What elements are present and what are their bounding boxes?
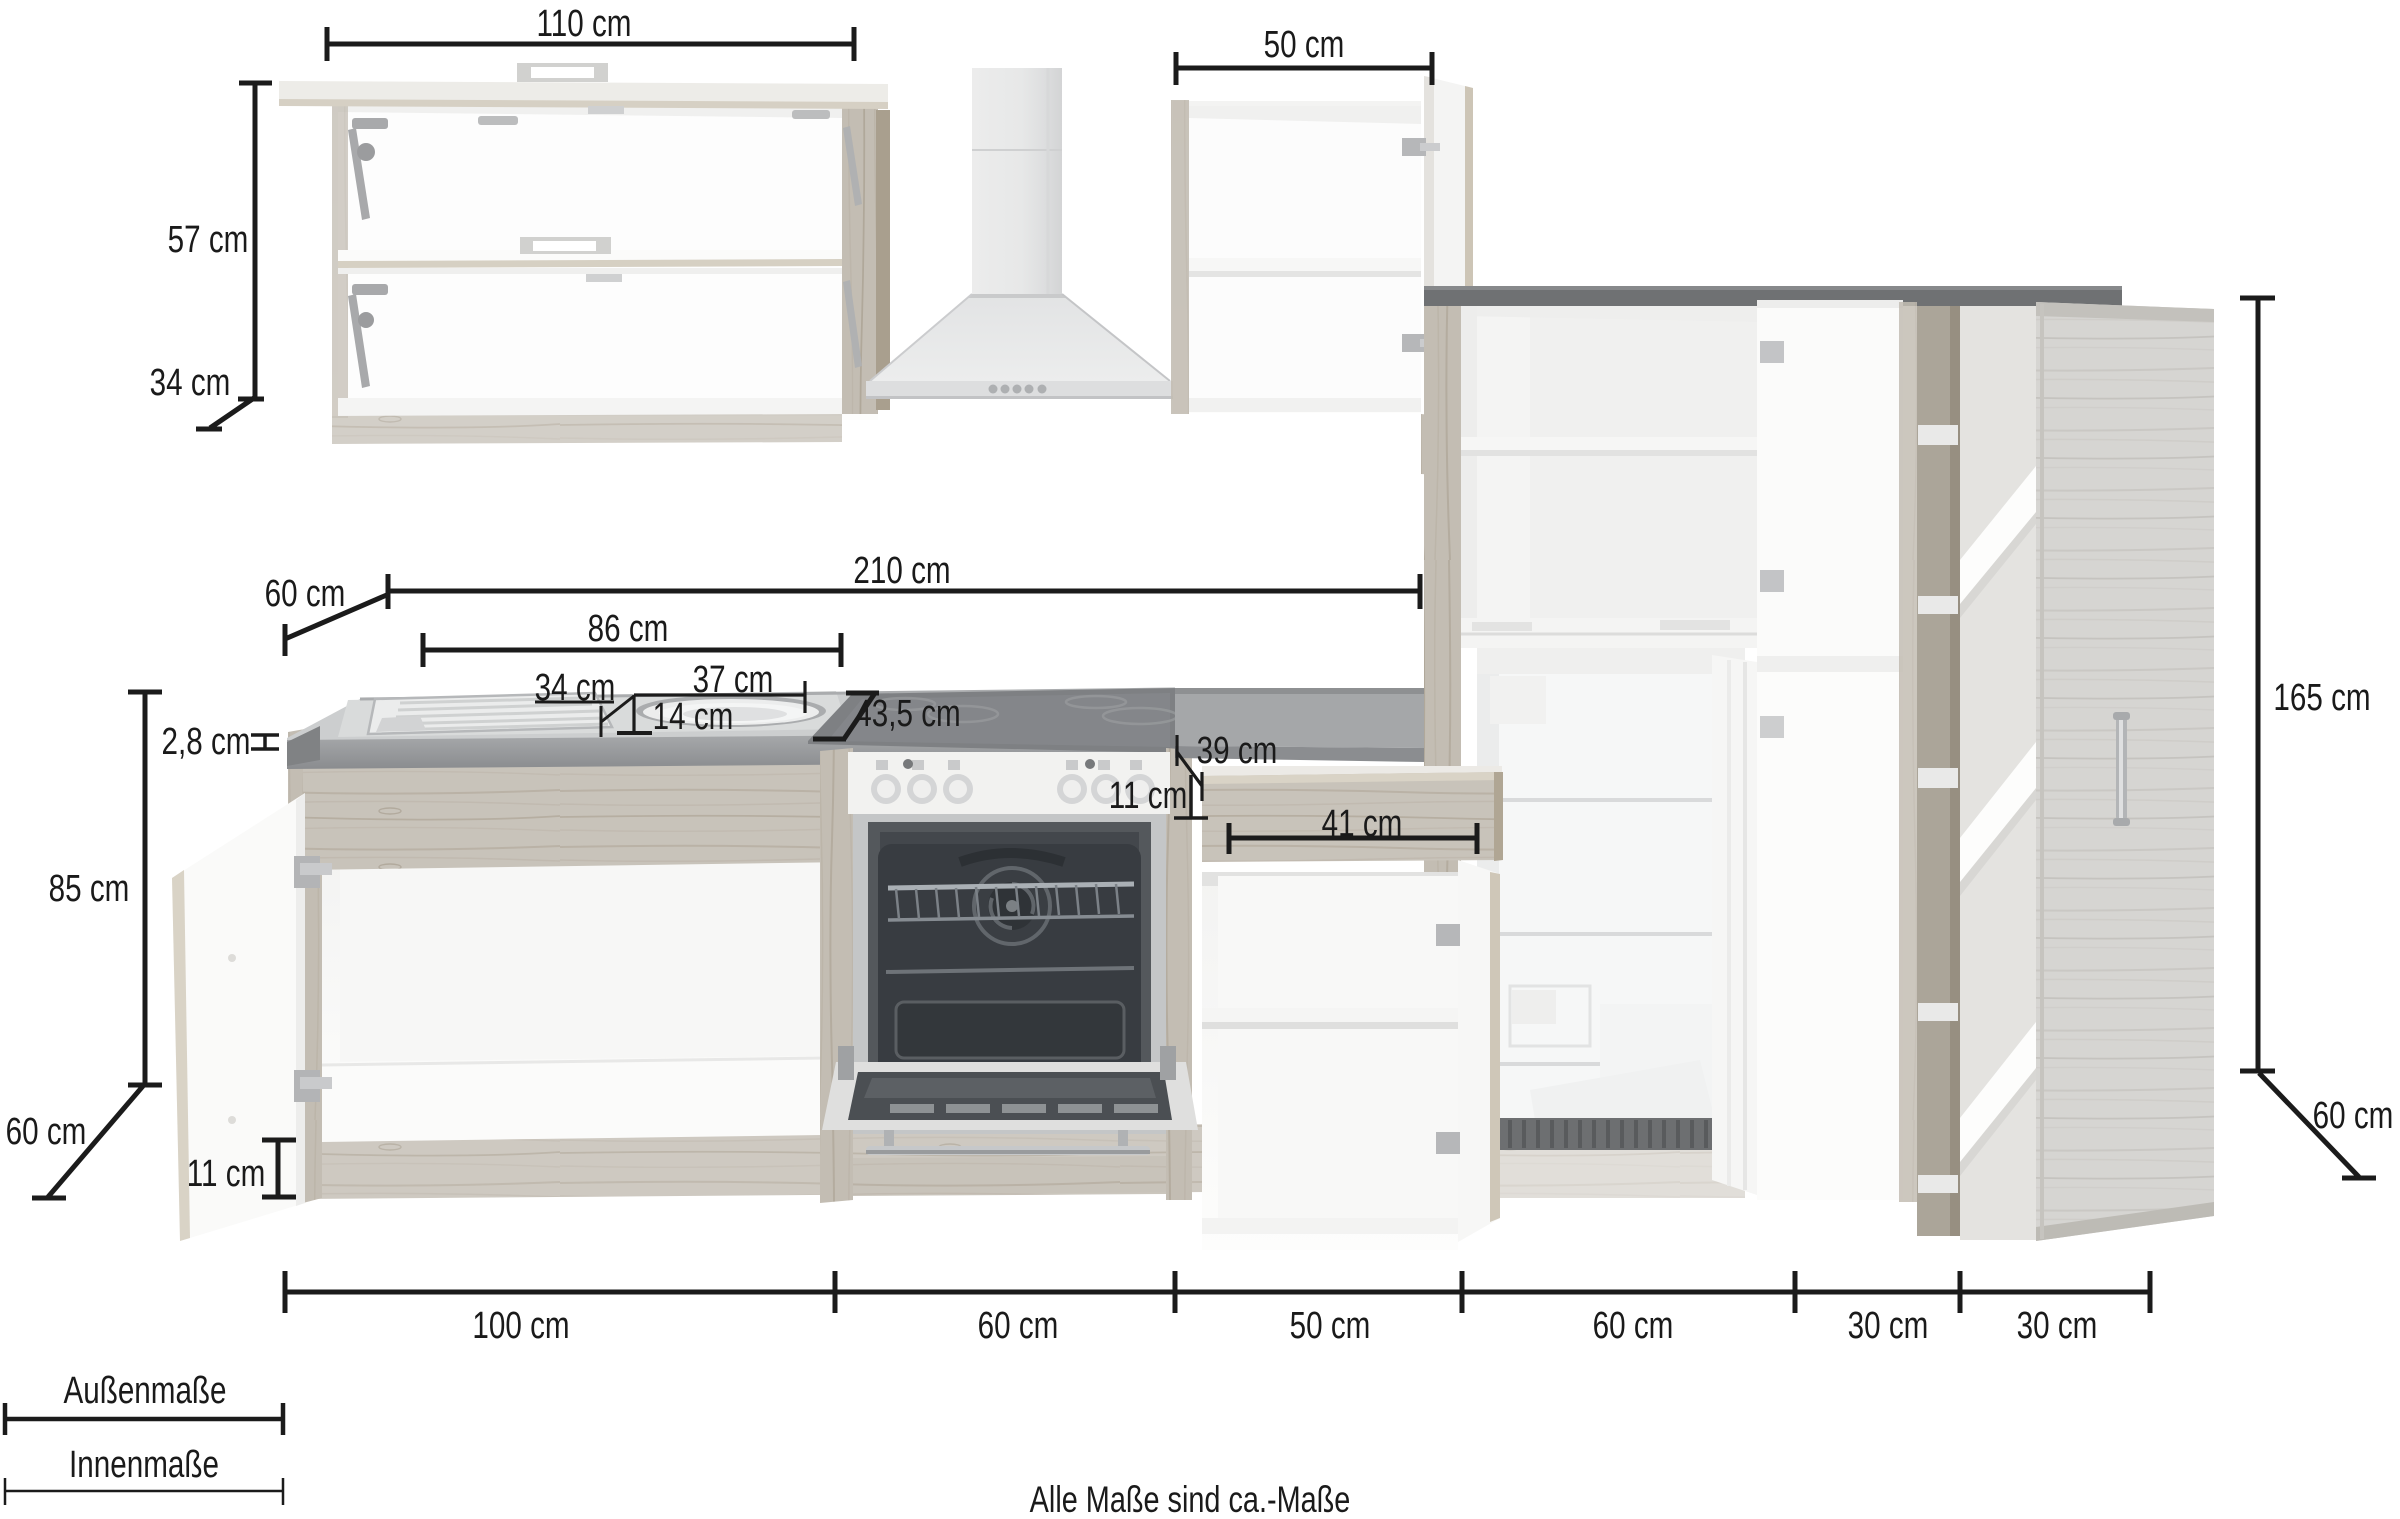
svg-text:30 cm: 30 cm [1848,1305,1929,1347]
svg-text:Innenmaße: Innenmaße [69,1444,219,1486]
svg-text:57 cm: 57 cm [168,219,249,261]
svg-text:14 cm: 14 cm [653,696,734,738]
svg-text:30 cm: 30 cm [2017,1305,2098,1347]
svg-text:Alle Maße sind ca.-Maße: Alle Maße sind ca.-Maße [1030,1480,1351,1519]
svg-text:100 cm: 100 cm [472,1305,569,1347]
svg-text:43,5 cm: 43,5 cm [855,693,960,735]
svg-text:60 cm: 60 cm [1593,1305,1674,1347]
svg-text:11 cm: 11 cm [187,1153,265,1195]
svg-text:86 cm: 86 cm [588,608,669,650]
svg-text:60 cm: 60 cm [978,1305,1059,1347]
svg-text:Außenmaße: Außenmaße [63,1370,226,1412]
svg-text:50 cm: 50 cm [1264,24,1345,66]
svg-text:60 cm: 60 cm [2313,1095,2394,1137]
svg-text:110 cm: 110 cm [537,3,632,45]
svg-text:34 cm: 34 cm [150,362,231,404]
svg-text:2,8 cm: 2,8 cm [162,721,251,763]
svg-text:11 cm: 11 cm [1109,775,1187,817]
svg-text:34 cm: 34 cm [535,667,616,709]
svg-text:50 cm: 50 cm [1290,1305,1371,1347]
svg-text:60 cm: 60 cm [265,573,346,615]
svg-text:210 cm: 210 cm [853,550,950,592]
svg-text:41 cm: 41 cm [1322,803,1403,845]
svg-text:165 cm: 165 cm [2273,677,2370,719]
svg-text:39 cm: 39 cm [1197,730,1278,772]
svg-text:85 cm: 85 cm [49,868,130,910]
svg-text:60 cm: 60 cm [6,1111,87,1153]
